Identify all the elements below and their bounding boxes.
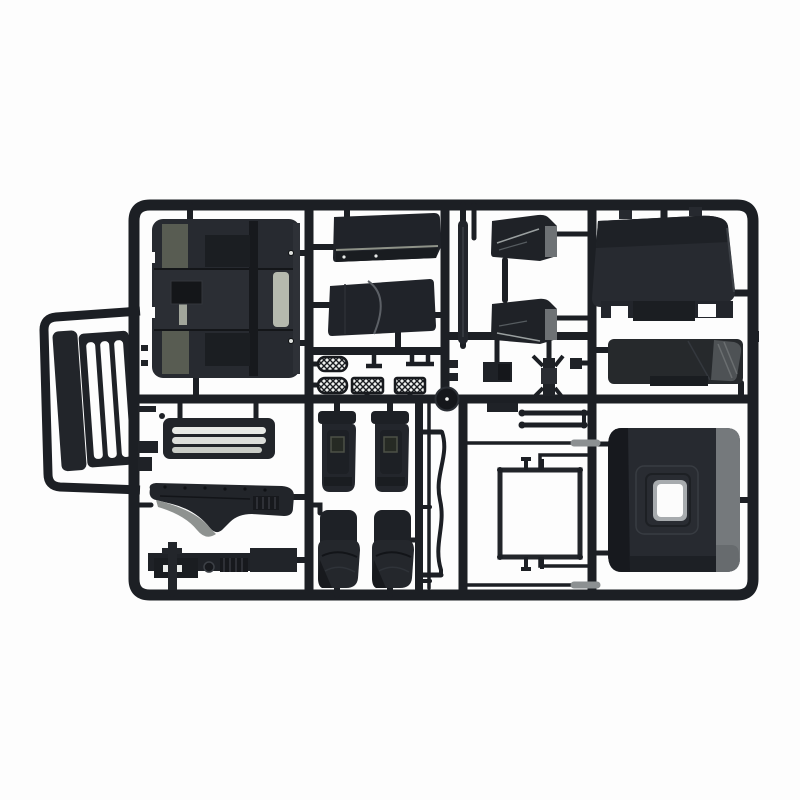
roof-notch	[698, 304, 716, 317]
seat-back	[318, 411, 356, 492]
ejector-mark	[289, 251, 294, 256]
seat-cushion	[318, 510, 360, 588]
sleeper-bar	[608, 339, 743, 386]
seat-back	[371, 411, 409, 492]
roof-panel	[592, 207, 735, 321]
ladder-block	[487, 403, 518, 412]
rail-right-block	[250, 548, 297, 572]
radiator-grille	[52, 327, 138, 472]
sprue-product-photo	[0, 0, 800, 800]
pillar-strip	[458, 220, 468, 344]
frame-nub	[752, 331, 759, 342]
light-slat-right	[273, 272, 289, 327]
mesh-step-rounded	[318, 357, 347, 371]
grille-slot	[172, 437, 266, 444]
runner-nub	[449, 360, 458, 368]
mesh-step-plate	[352, 378, 383, 393]
back-panel	[608, 428, 740, 572]
tiny-nub	[141, 360, 148, 366]
side-panel-lower	[328, 279, 436, 336]
seat-buckle	[331, 437, 344, 452]
tiny-dot	[159, 413, 165, 419]
headrest	[318, 411, 356, 424]
ejector-mark	[374, 254, 377, 257]
runner-nub	[449, 373, 458, 381]
rail-pin-cross	[162, 548, 182, 554]
ejector-mark	[289, 339, 294, 344]
door-wedge-lower	[491, 299, 557, 344]
roof-tab	[689, 207, 702, 216]
panel-body	[328, 279, 436, 336]
edge-notch	[148, 307, 155, 318]
recess-bottom	[205, 333, 250, 366]
back-panel-dark-edge	[608, 428, 630, 572]
mirror-arm-box	[541, 368, 557, 384]
door-wedge-upper	[491, 215, 557, 261]
center-spine	[249, 221, 258, 376]
cab-floor-panel	[148, 219, 300, 378]
seat-bottom-band	[324, 477, 352, 486]
roof-tab	[619, 210, 632, 219]
gray-insert-top	[162, 224, 188, 269]
seat-cushion	[372, 510, 414, 588]
tiny-block	[138, 457, 152, 471]
edge-notch	[148, 252, 155, 263]
gray-insert-bottom	[162, 329, 189, 374]
back-panel-bottom-strip	[630, 556, 716, 572]
window-opening	[657, 484, 683, 517]
raised-block	[171, 281, 202, 304]
roof-center-tab	[633, 301, 695, 321]
rail-ring	[204, 562, 214, 572]
tiny-nub	[141, 345, 148, 351]
small-square-part	[570, 358, 582, 369]
tiny-bar	[138, 406, 156, 412]
front-grille-slats	[163, 418, 275, 459]
disc-center-mark	[445, 397, 449, 401]
tiny-block	[138, 441, 158, 453]
disc-part	[436, 388, 459, 411]
sprue-illustration	[0, 0, 800, 800]
wedge-gray-block	[545, 226, 557, 257]
grille-slot	[172, 427, 266, 434]
grille-slot	[172, 447, 262, 453]
mesh-step-plate	[395, 378, 425, 393]
edge-highlight	[293, 223, 300, 374]
mesh-step-rounded	[318, 378, 347, 393]
side-panel-upper	[333, 213, 441, 262]
bar-bottom-tab	[650, 376, 708, 386]
gray-band-shade	[716, 545, 739, 572]
ejector-mark	[342, 255, 345, 258]
bracket-block-dark	[498, 364, 510, 380]
roof-notch	[611, 306, 628, 319]
wedge-gray-block	[545, 309, 557, 340]
recess-top	[205, 235, 250, 267]
